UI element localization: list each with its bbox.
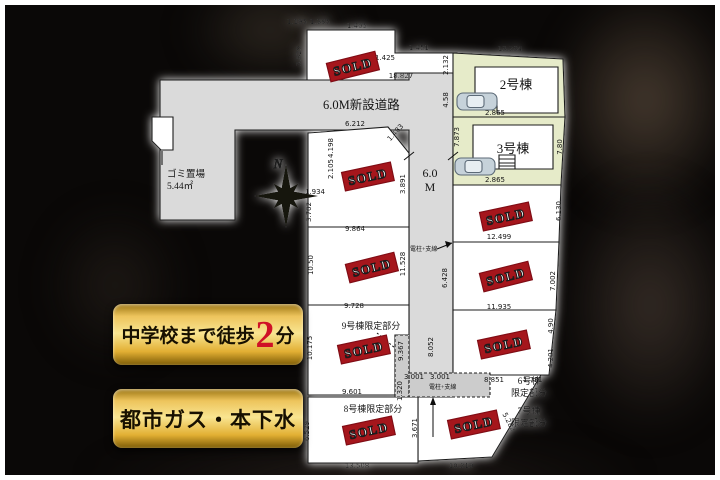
dim-label: 11.935 <box>487 303 512 311</box>
dim-label: 6.529 <box>303 421 311 441</box>
plot-map-svg: N 6.0M新設道路 6.0 M ゴミ置場 5.44㎡ 2号棟 3号棟 9号棟限 <box>5 5 715 475</box>
dim-label: 2.105 <box>327 159 335 179</box>
dim-label: 3.702 <box>305 202 313 222</box>
dim-label: 1.451 <box>409 44 429 52</box>
dim-label: 7.80 <box>556 139 564 155</box>
screenshot-canvas: N 6.0M新設道路 6.0 M ゴミ置場 5.44㎡ 2号棟 3号棟 9号棟限 <box>0 0 720 480</box>
dim-label: 13.508 <box>345 462 370 470</box>
dim-label: 9.728 <box>344 302 364 310</box>
dim-label: 3.001 <box>430 373 450 381</box>
road-width-unit: M <box>425 180 436 194</box>
pole-label: 電柱+支線 <box>410 245 437 253</box>
compass-north-label: N <box>273 156 284 171</box>
dim-label: 12.499 <box>487 233 512 241</box>
lot6-note: 限定部分 <box>511 387 547 398</box>
dim-label: 1.781 <box>523 376 543 384</box>
lot8-note: 8号棟限定部分 <box>344 403 403 414</box>
dim-label: 11.528 <box>399 252 407 277</box>
steps-icon <box>499 155 515 169</box>
badge-highlight-number: 2 <box>256 316 275 354</box>
lot9-note: 9号棟限定部分 <box>342 320 401 331</box>
dim-label: 1.425 <box>375 54 395 62</box>
dim-label: 4.58 <box>442 92 450 108</box>
dim-label: 8.052 <box>427 337 435 357</box>
dim-label: 18.827 <box>389 72 414 80</box>
building-2-label: 2号棟 <box>500 77 533 92</box>
building-3-label: 3号棟 <box>497 141 530 156</box>
dim-label: 10.175 <box>306 336 314 361</box>
garbage-label: ゴミ置場 <box>167 168 206 180</box>
dim-label: 6.212 <box>345 120 365 128</box>
garbage-area-value: 5.44㎡ <box>167 181 194 192</box>
badge-text: 都市ガス・本下水 <box>120 404 296 434</box>
dim-label: 9.864 <box>345 225 366 233</box>
badge-text: 中学校まで徒歩 <box>121 321 254 348</box>
dim-label: 10.50 <box>307 255 315 275</box>
dim-label: 7.873 <box>453 127 461 147</box>
dim-label: 9.367 <box>397 341 405 361</box>
dim-label: 3.829 <box>295 46 303 66</box>
dim-label: 2.865 <box>485 176 505 184</box>
dim-label: 2.132 <box>442 55 450 75</box>
dim-label: 4.90 <box>547 318 555 334</box>
dim-label: 13.734 <box>498 45 523 53</box>
car-icon <box>455 158 495 175</box>
dim-label: 3.891 <box>399 174 407 194</box>
car-icon <box>457 93 497 110</box>
dim-label: 10.319 <box>449 462 474 470</box>
dim-label: 4.201 <box>547 348 555 368</box>
dim-label: 1.405 <box>347 22 367 30</box>
dim-label: 3.671 <box>411 418 419 438</box>
dim-label: 9.601 <box>342 388 362 396</box>
badge-text: 分 <box>276 321 295 348</box>
road-name-label: 6.0M新設道路 <box>323 97 400 112</box>
dim-label: 3.001 <box>404 373 424 381</box>
dim-label: 1.320 <box>396 381 404 401</box>
dim-label: 4.198 <box>327 138 335 158</box>
badge-utilities: 都市ガス・本下水 <box>113 389 303 448</box>
road-width-value: 6.0 <box>423 166 438 180</box>
pole-label: 電柱+支線 <box>429 383 456 391</box>
lot7-note: 7号棟 <box>518 405 541 416</box>
dim-label: 1.195 <box>287 18 307 26</box>
dim-label: 6.428 <box>441 268 449 288</box>
dim-label: 6.130 <box>555 201 563 221</box>
dim-label: 7.002 <box>549 271 557 291</box>
badge-school-distance: 中学校まで徒歩 2 分 <box>113 304 303 365</box>
dim-label: 1.385 <box>310 18 330 26</box>
dim-label: 2.865 <box>485 109 505 117</box>
dim-label: 1.934 <box>305 188 326 196</box>
dim-label: 8.851 <box>484 376 504 384</box>
garbage-area-shape <box>152 117 173 150</box>
